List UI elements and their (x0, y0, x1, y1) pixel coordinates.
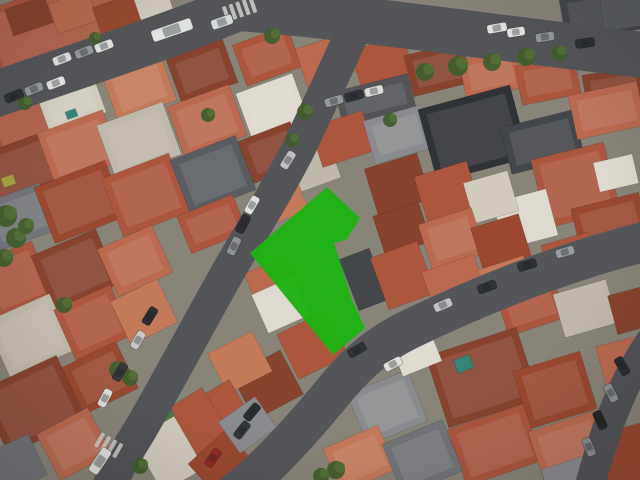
aerial-photo-canvas (0, 0, 640, 480)
map-viewport[interactable] (0, 0, 640, 480)
